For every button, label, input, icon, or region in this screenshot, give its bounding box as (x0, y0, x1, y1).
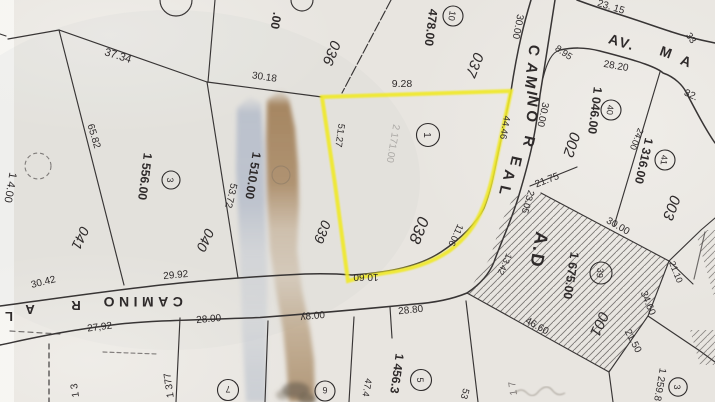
svg-text:40: 40 (605, 104, 616, 115)
svg-text:ʎ8.00: ʎ8.00 (300, 310, 326, 323)
svg-text:1 3: 1 3 (69, 382, 82, 398)
svg-text:10: 10 (446, 10, 458, 22)
svg-text:6: 6 (322, 385, 327, 395)
svg-text:41: 41 (659, 154, 670, 165)
svg-text:.00: .00 (268, 11, 285, 30)
svg-text:R: R (71, 298, 81, 313)
svg-text:9.28: 9.28 (392, 78, 413, 90)
svg-text:CAMINO: CAMINO (99, 294, 183, 310)
svg-text:28.00: 28.00 (196, 313, 222, 326)
svg-text:3: 3 (165, 177, 175, 182)
svg-text:3: 3 (672, 384, 682, 389)
svg-text:7: 7 (225, 384, 230, 394)
svg-text:1: 1 (421, 132, 432, 138)
svg-text:10.60: 10.60 (353, 271, 378, 282)
svg-text:29.92: 29.92 (163, 269, 189, 282)
svg-text:1 7: 1 7 (507, 380, 520, 396)
svg-text:A: A (25, 302, 35, 317)
svg-text:L: L (5, 309, 13, 324)
svg-text:5: 5 (415, 377, 425, 382)
svg-text:39: 39 (595, 267, 606, 278)
